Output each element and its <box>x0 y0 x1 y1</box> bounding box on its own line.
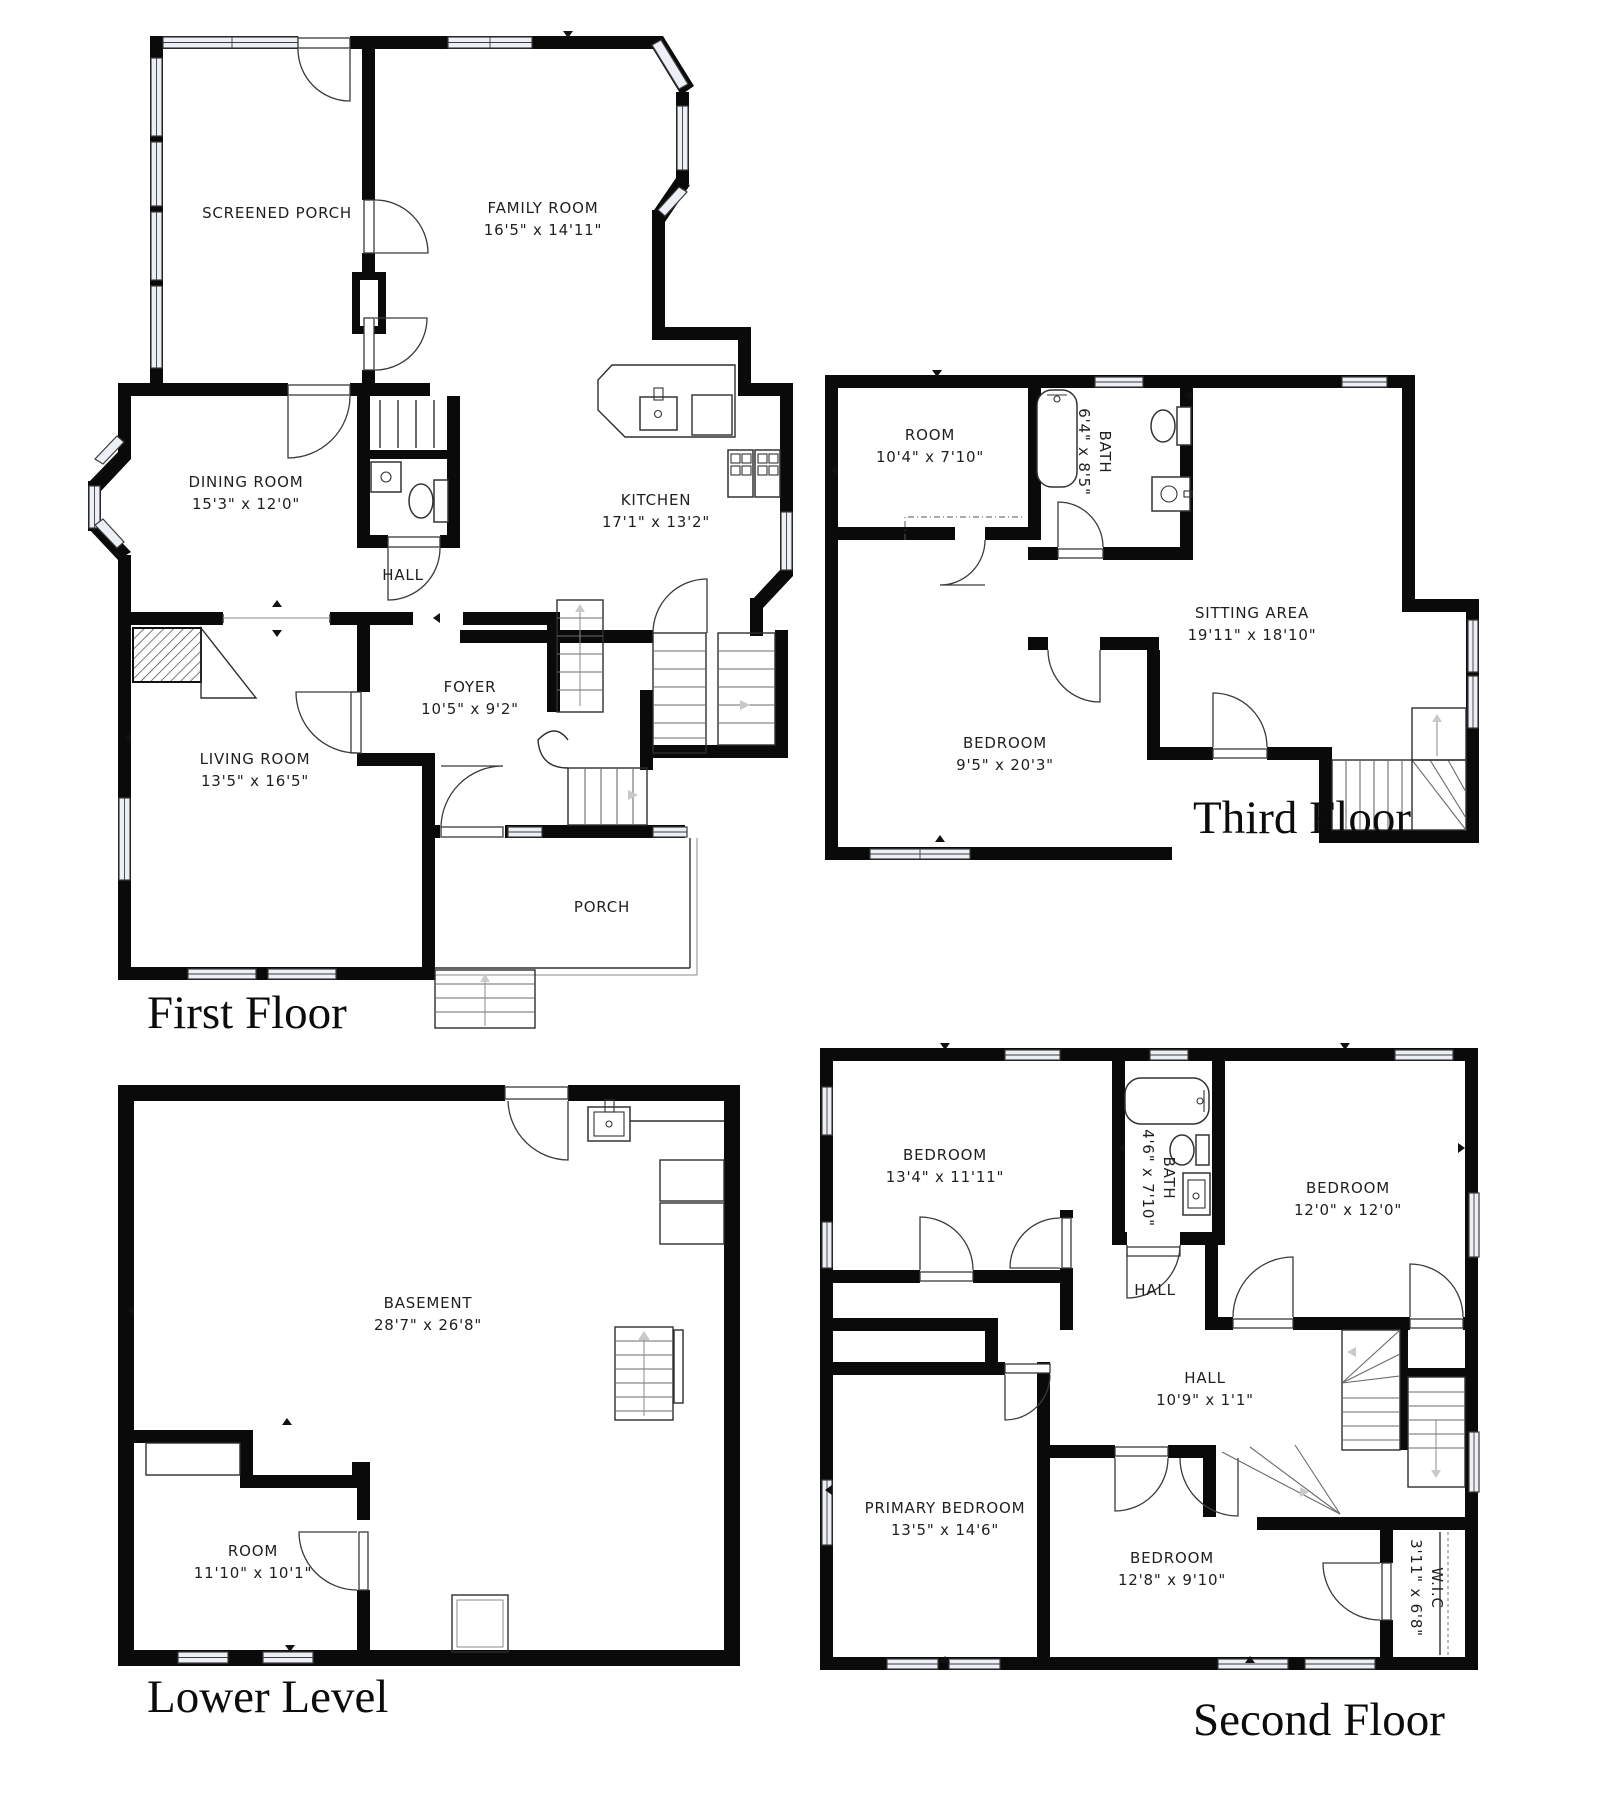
wall-arrow <box>935 835 945 842</box>
room-dims: 12'0" x 12'0" <box>1294 1201 1402 1219</box>
wall-arrow <box>272 630 282 637</box>
room-dims: 17'1" x 13'2" <box>602 513 710 531</box>
room-label: PRIMARY BEDROOM <box>865 1499 1026 1517</box>
room-label: BASEMENT <box>384 1294 473 1312</box>
floor-title: Second Floor <box>1193 1694 1445 1746</box>
floor-title: Third Floor <box>1193 792 1411 844</box>
porch-steps <box>435 970 535 1028</box>
room-label: KITCHEN <box>621 491 692 509</box>
rotated-label: BATH 6'4" x 8'5" <box>1075 408 1114 495</box>
room-dims: 10'9" x 1'1" <box>1156 1391 1254 1409</box>
room-label: HALL <box>382 566 423 584</box>
toilet-icon <box>409 480 448 522</box>
second-floor-plan: BEDROOM 13'4" x 11'11" BATH 4'6" x 7'10"… <box>820 1043 1479 1746</box>
wall-arrow <box>272 600 282 607</box>
kitchen-island <box>598 365 735 437</box>
staircase <box>615 1327 683 1420</box>
room-label: BEDROOM <box>903 1146 987 1164</box>
floor-plan-drawing: SCREENED PORCH FAMILY ROOM 16'5" x 14'11… <box>0 0 1608 1799</box>
closet <box>146 1443 240 1475</box>
room-dims: 13'5" x 16'5" <box>201 772 309 790</box>
wall-arrow <box>433 613 440 623</box>
room-label: HALL <box>1134 1281 1175 1299</box>
svg-text:3'11" x 6'8": 3'11" x 6'8" <box>1407 1539 1425 1637</box>
room-dims: 16'5" x 14'11" <box>484 221 602 239</box>
room-label: FAMILY ROOM <box>488 199 599 217</box>
sink-icon <box>1183 1173 1210 1215</box>
svg-text:BATH: BATH <box>1096 430 1114 473</box>
room-dims: 19'11" x 18'10" <box>1188 626 1317 644</box>
stove-icon <box>728 450 780 497</box>
room-label: FOYER <box>444 678 497 696</box>
first-floor-plan: SCREENED PORCH FAMILY ROOM 16'5" x 14'11… <box>88 31 793 1039</box>
fireplace-icon <box>133 628 256 698</box>
room-dims: 12'8" x 9'10" <box>1118 1571 1226 1589</box>
bathtub-icon <box>1037 390 1077 487</box>
bathtub-icon <box>1125 1078 1209 1124</box>
svg-text:BATH: BATH <box>1160 1156 1178 1199</box>
floor-title: First Floor <box>147 987 347 1039</box>
svg-text:W.I.C: W.I.C <box>1428 1567 1446 1609</box>
room-dims: 15'3" x 12'0" <box>192 495 300 513</box>
room-dims: 10'5" x 9'2" <box>421 700 519 718</box>
porch-outline <box>435 838 697 975</box>
svg-text:6'4" x 8'5": 6'4" x 8'5" <box>1075 408 1093 495</box>
room-label: ROOM <box>905 426 955 444</box>
floor-title: Lower Level <box>147 1671 388 1723</box>
water-heater-icon <box>452 1595 508 1652</box>
room-dims: 13'5" x 14'6" <box>891 1521 999 1539</box>
room-dims: 10'4" x 7'10" <box>876 448 984 466</box>
floor-plan-sheet: SCREENED PORCH FAMILY ROOM 16'5" x 14'11… <box>0 0 1608 1799</box>
room-label: ROOM <box>228 1542 278 1560</box>
room-label: PORCH <box>574 898 630 916</box>
room-label: BEDROOM <box>1306 1179 1390 1197</box>
room-dims: 11'10" x 10'1" <box>194 1564 312 1582</box>
room-label: LIVING ROOM <box>200 750 311 768</box>
room-label: HALL <box>1184 1369 1225 1387</box>
lower-level-plan: BASEMENT 28'7" x 26'8" ROOM 11'10" x 10'… <box>118 1085 980 1723</box>
room-dims: 13'4" x 11'11" <box>886 1168 1004 1186</box>
sink-icon <box>588 1100 630 1141</box>
room-label: SITTING AREA <box>1195 604 1309 622</box>
door-icon <box>299 1087 568 1590</box>
wall-arrow <box>1458 1143 1465 1153</box>
staircase <box>1222 1330 1465 1514</box>
shelf <box>660 1203 724 1244</box>
room-dims: 9'5" x 20'3" <box>956 756 1054 774</box>
room-dims: 28'7" x 26'8" <box>374 1316 482 1334</box>
room-label: DINING ROOM <box>188 473 303 491</box>
sink-icon <box>1152 477 1192 511</box>
counter <box>692 395 732 435</box>
toilet-icon <box>1151 407 1191 445</box>
wall-arrow <box>282 1418 292 1425</box>
third-floor-plan: ROOM 10'4" x 7'10" BATH 6'4" x 8'5" SITT… <box>825 370 1479 860</box>
room-label: BEDROOM <box>963 734 1047 752</box>
room-label: SCREENED PORCH <box>202 204 352 222</box>
shelf <box>660 1160 724 1201</box>
svg-text:4'6" x 7'10": 4'6" x 7'10" <box>1139 1129 1157 1227</box>
room-label: BEDROOM <box>1130 1549 1214 1567</box>
sink-icon <box>371 462 401 492</box>
